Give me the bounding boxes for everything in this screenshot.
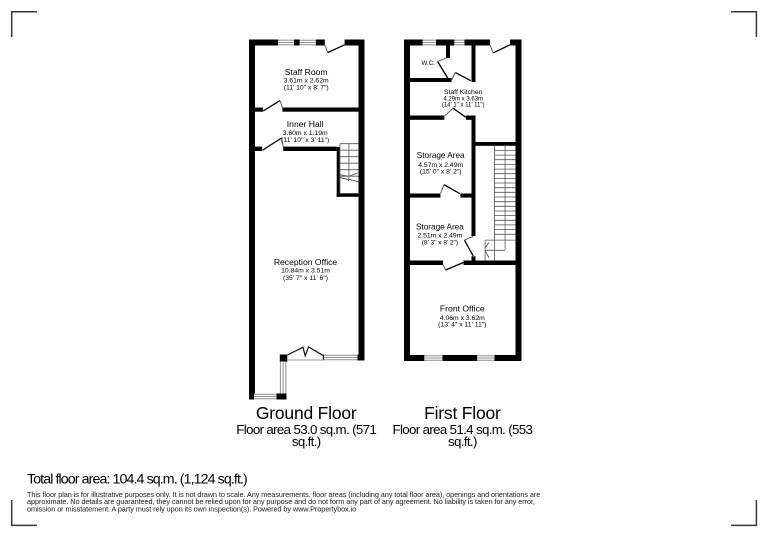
svg-text:Inner Hall: Inner Hall [287,119,324,129]
svg-text:Staff Kitchen: Staff Kitchen [444,89,483,96]
svg-text:(35’ 7" x 11’ 6"): (35’ 7" x 11’ 6") [283,275,328,282]
svg-text:(15’ 0" x 8’ 2"): (15’ 0" x 8’ 2") [420,168,462,175]
svg-text:omission or misstatement. A pa: omission or misstatement. A party must r… [27,504,356,513]
svg-text:(11’ 10" x 3’ 11"): (11’ 10" x 3’ 11") [281,137,329,144]
svg-text:Ground Floor: Ground Floor [256,403,357,423]
svg-text:(11’ 10" x 8’ 7"): (11’ 10" x 8’ 7") [284,85,329,92]
svg-text:Total floor area: 104.4 sq.m.: Total floor area: 104.4 sq.m. (1,124 sq.… [27,472,247,488]
svg-text:Storage Area: Storage Area [416,222,464,231]
svg-text:(14’ 1" x 11’ 11"): (14’ 1" x 11’ 11") [442,103,485,109]
svg-text:sq.ft.): sq.ft.) [448,434,477,449]
svg-text:Reception Office: Reception Office [274,257,338,267]
svg-text:Storage Area: Storage Area [417,151,465,160]
svg-text:10.84m x 3.51m: 10.84m x 3.51m [281,268,330,275]
svg-text:Front Office: Front Office [440,303,485,313]
svg-text:First Floor: First Floor [424,403,501,423]
svg-text:Staff Room: Staff Room [285,67,328,77]
svg-text:(8’ 3" x 8’ 2"): (8’ 3" x 8’ 2") [422,239,458,246]
svg-text:(13’ 4" x 11’ 11"): (13’ 4" x 11’ 11") [438,321,486,328]
svg-text:W.C.: W.C. [421,60,435,67]
svg-text:sq.ft.): sq.ft.) [292,434,321,449]
svg-text:3.60m x 1.19m: 3.60m x 1.19m [283,130,328,137]
svg-text:3.61m x 2.62m: 3.61m x 2.62m [284,78,329,85]
